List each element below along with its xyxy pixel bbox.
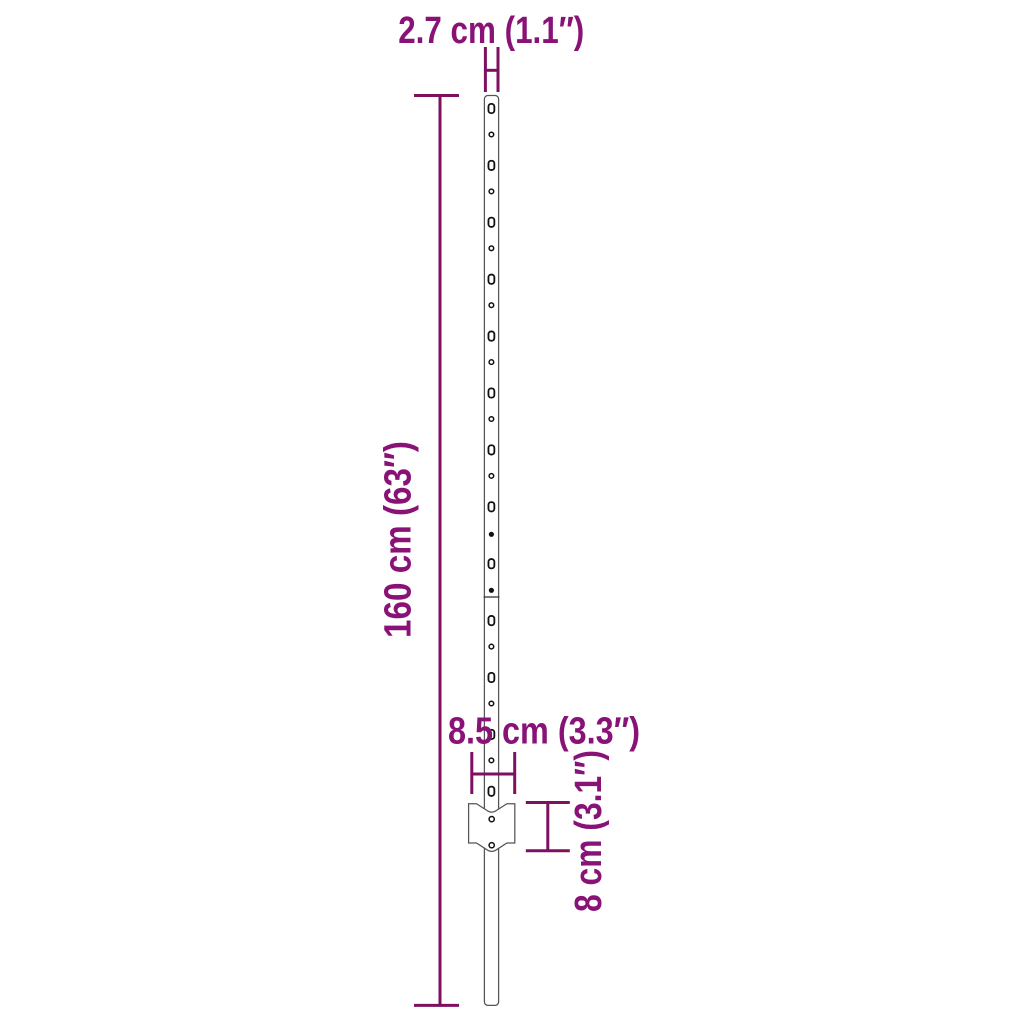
svg-text:8.5 cm (3.3″): 8.5 cm (3.3″) [448, 711, 640, 753]
svg-text:8 cm (3.1″): 8 cm (3.1″) [568, 750, 610, 912]
svg-text:160 cm (63″): 160 cm (63″) [378, 441, 420, 638]
svg-text:2.7 cm (1.1″): 2.7 cm (1.1″) [398, 10, 584, 52]
